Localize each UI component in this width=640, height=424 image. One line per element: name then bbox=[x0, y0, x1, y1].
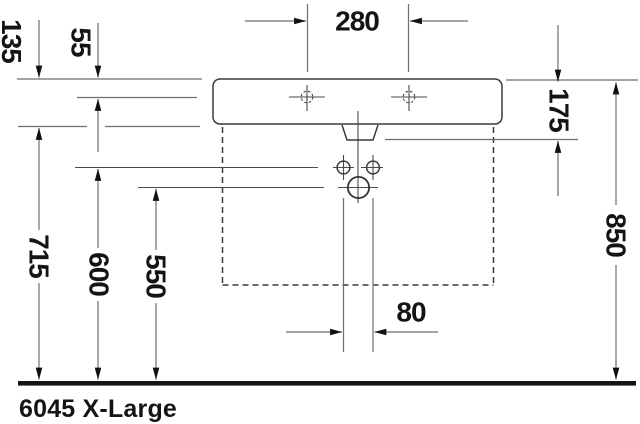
dim-label-80: 80 bbox=[396, 297, 426, 328]
drain bbox=[138, 177, 378, 198]
product-label: 6045 X-Large bbox=[19, 395, 177, 423]
dim-label-850: 850 bbox=[601, 213, 632, 257]
fixing-holes bbox=[75, 155, 383, 180]
technical-drawing-page: 280 135 55 175 850 715 600 550 bbox=[0, 0, 640, 424]
faucet-hole-left bbox=[289, 85, 325, 111]
dim-label-135: 135 bbox=[0, 19, 27, 63]
dim-label-280: 280 bbox=[335, 6, 379, 37]
dimension-faucet-spacing: 280 bbox=[245, 4, 468, 72]
dim-label-715: 715 bbox=[24, 234, 55, 278]
dimension-fixing-height: 600 bbox=[84, 169, 115, 380]
washbasin-dimension-drawing: 280 135 55 175 850 715 600 550 bbox=[0, 0, 640, 424]
dimension-drain-height: 550 bbox=[141, 189, 172, 380]
dim-label-550: 550 bbox=[141, 254, 172, 298]
dimension-rim-to-faucet: 55 bbox=[66, 23, 99, 152]
dimension-underside-height: 715 bbox=[24, 128, 55, 380]
dim-label-175: 175 bbox=[544, 88, 575, 132]
dimension-fixing-distance: 80 bbox=[286, 297, 438, 333]
washbasin-front-view bbox=[75, 79, 502, 285]
dim-label-55: 55 bbox=[66, 27, 97, 57]
dimension-rim-to-overflow: 175 bbox=[544, 25, 575, 196]
overflow-outlet bbox=[342, 125, 378, 140]
dim-label-600: 600 bbox=[84, 252, 115, 296]
floor-line bbox=[18, 381, 636, 386]
dimension-rim-height: 850 bbox=[601, 83, 632, 380]
faucet-hole-right bbox=[391, 85, 427, 111]
dimension-basin-height: 135 bbox=[0, 19, 39, 77]
